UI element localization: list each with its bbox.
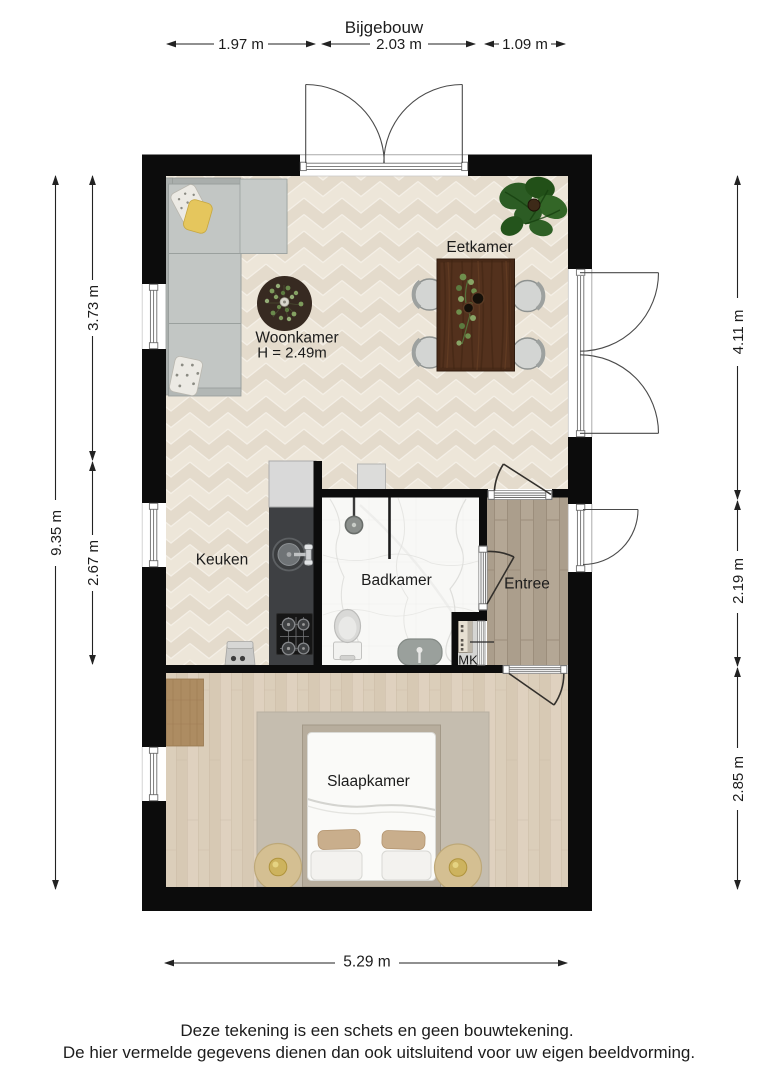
svg-text:H = 2.49m: H = 2.49m [257, 345, 327, 362]
svg-text:Bijgebouw: Bijgebouw [345, 18, 424, 37]
svg-text:Deze tekening is een schets en: Deze tekening is een schets en geen bouw… [180, 1021, 573, 1040]
svg-text:2.85 m: 2.85 m [730, 756, 747, 802]
svg-text:Badkamer: Badkamer [361, 572, 432, 589]
svg-text:2.03 m: 2.03 m [376, 36, 422, 53]
svg-text:Entree: Entree [504, 576, 550, 593]
svg-text:3.73 m: 3.73 m [85, 285, 102, 331]
svg-text:MK: MK [458, 653, 478, 668]
svg-text:4.11 m: 4.11 m [730, 310, 747, 355]
svg-text:1.09 m: 1.09 m [502, 36, 548, 53]
svg-text:2.19 m: 2.19 m [730, 558, 747, 604]
svg-text:1.97 m: 1.97 m [218, 36, 264, 53]
svg-text:Eetkamer: Eetkamer [446, 239, 512, 256]
svg-text:5.29 m: 5.29 m [343, 954, 390, 971]
svg-text:De hier vermelde gegevens dien: De hier vermelde gegevens dienen dan ook… [63, 1043, 695, 1062]
svg-text:Keuken: Keuken [196, 552, 249, 569]
svg-text:9.35 m: 9.35 m [48, 510, 65, 556]
svg-text:Slaapkamer: Slaapkamer [327, 773, 410, 790]
svg-text:2.67 m: 2.67 m [85, 540, 102, 586]
